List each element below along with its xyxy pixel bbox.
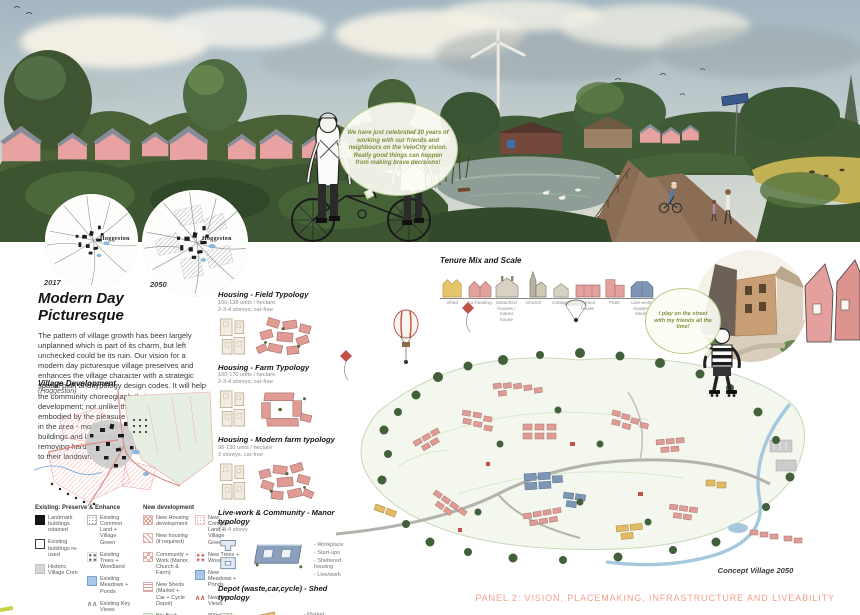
swatch-historic-core [35,564,45,574]
typology-depot: Depot (waste,car,cycle) - Shed typology [218,585,358,615]
swatch-landmark-buildings [35,515,45,525]
village-development-heading: Village Development [38,379,116,388]
farm-plan-diagram [218,389,247,429]
hero-collage: We have just celebrated 30 years of work… [0,0,860,242]
swatch-new-meadows [195,570,205,580]
swatch-existing-meadows [87,576,97,586]
map-legend: Existing: Preserve & Enhance Landmark bu… [35,505,221,615]
swatch-existing-trees [87,552,97,562]
hero-speech-text: We have just celebrated 30 years of work… [347,130,449,168]
corner-mark [0,606,13,612]
legend-existing-group: Existing: Preserve & Enhance Landmark bu… [35,505,133,615]
legend-item: Landmark buildings retained [35,515,81,533]
legend-item: Existing Meadows + Ponds [87,576,133,594]
concept-village-caption: Concept Village 2050 [698,566,813,575]
depot-axon-diagram [245,606,298,615]
swatch-new-housing [143,515,153,525]
key-views-icon: ∧∧ [87,601,97,609]
legend-item: Existing Common Land + Village Green [87,515,133,546]
modern-farm-plan-diagram [218,462,247,502]
street-scene-inset: I play on the street with my friends all… [645,246,860,398]
legend-existing-title: Existing: Preserve & Enhance [35,505,133,511]
legend-item: Community + Work (Manor, Church & Farm) [143,552,189,577]
new-key-views-icon: ∧∧ [195,595,205,603]
legend-item: ∧∧Existing Key Views [87,601,133,613]
map-circle-2017: Hoggeston [45,194,138,287]
legend-item: New Sheds (Market + Car + Cycle Depot) [143,582,189,607]
swatch-new-common-land [195,515,205,525]
field-plan-diagram [218,317,247,357]
manor-plan-diagram [218,536,242,574]
hot-air-balloon [394,310,418,364]
manor-axon-diagram [248,536,308,574]
legend-item: New housing (if required) [143,533,189,545]
map-place-label: Hoggeston [202,236,232,242]
pink-house-fragment [803,252,860,349]
swatch-new-trees [195,552,205,562]
swatch-existing-buildings [35,539,45,549]
legend-item: Existing Trees + Woodland [87,552,133,570]
depot-plan-diagram [218,606,239,615]
swatch-existing-common-land [87,515,97,525]
parachutist [566,300,586,322]
swatch-new-sheds [143,582,153,592]
village-development-map [30,390,215,513]
field-axon-diagram [253,317,317,357]
inset-speech-text: I play on the street with my friends all… [654,311,712,331]
legend-item: Historic Village Core [35,564,81,576]
panel-footer-title: PANEL 2: VISION, PLACEMAKING, INFRASTRUC… [380,593,835,603]
map-place-label: Hoggeston [100,236,130,242]
hero-speech-bubble: We have just celebrated 30 years of work… [338,102,458,196]
farm-axon-diagram [253,389,317,429]
map-year-2017: 2017 [44,278,61,287]
swatch-new-housing-if-required [143,533,153,543]
modern-farm-axon-diagram [253,462,317,502]
legend-item: Existing buildings re-used [35,539,81,557]
inset-speech-bubble: I play on the street with my friends all… [645,288,721,354]
legend-item: New Housing development [143,515,189,527]
presentation-panel: We have just celebrated 30 years of work… [0,0,860,615]
swatch-community-work [143,552,153,562]
typology-title: Depot (waste,car,cycle) - Shed typology [218,585,358,602]
map-year-2050: 2050 [150,280,167,289]
tenure-title: Tenure Mix and Scale [440,256,654,265]
